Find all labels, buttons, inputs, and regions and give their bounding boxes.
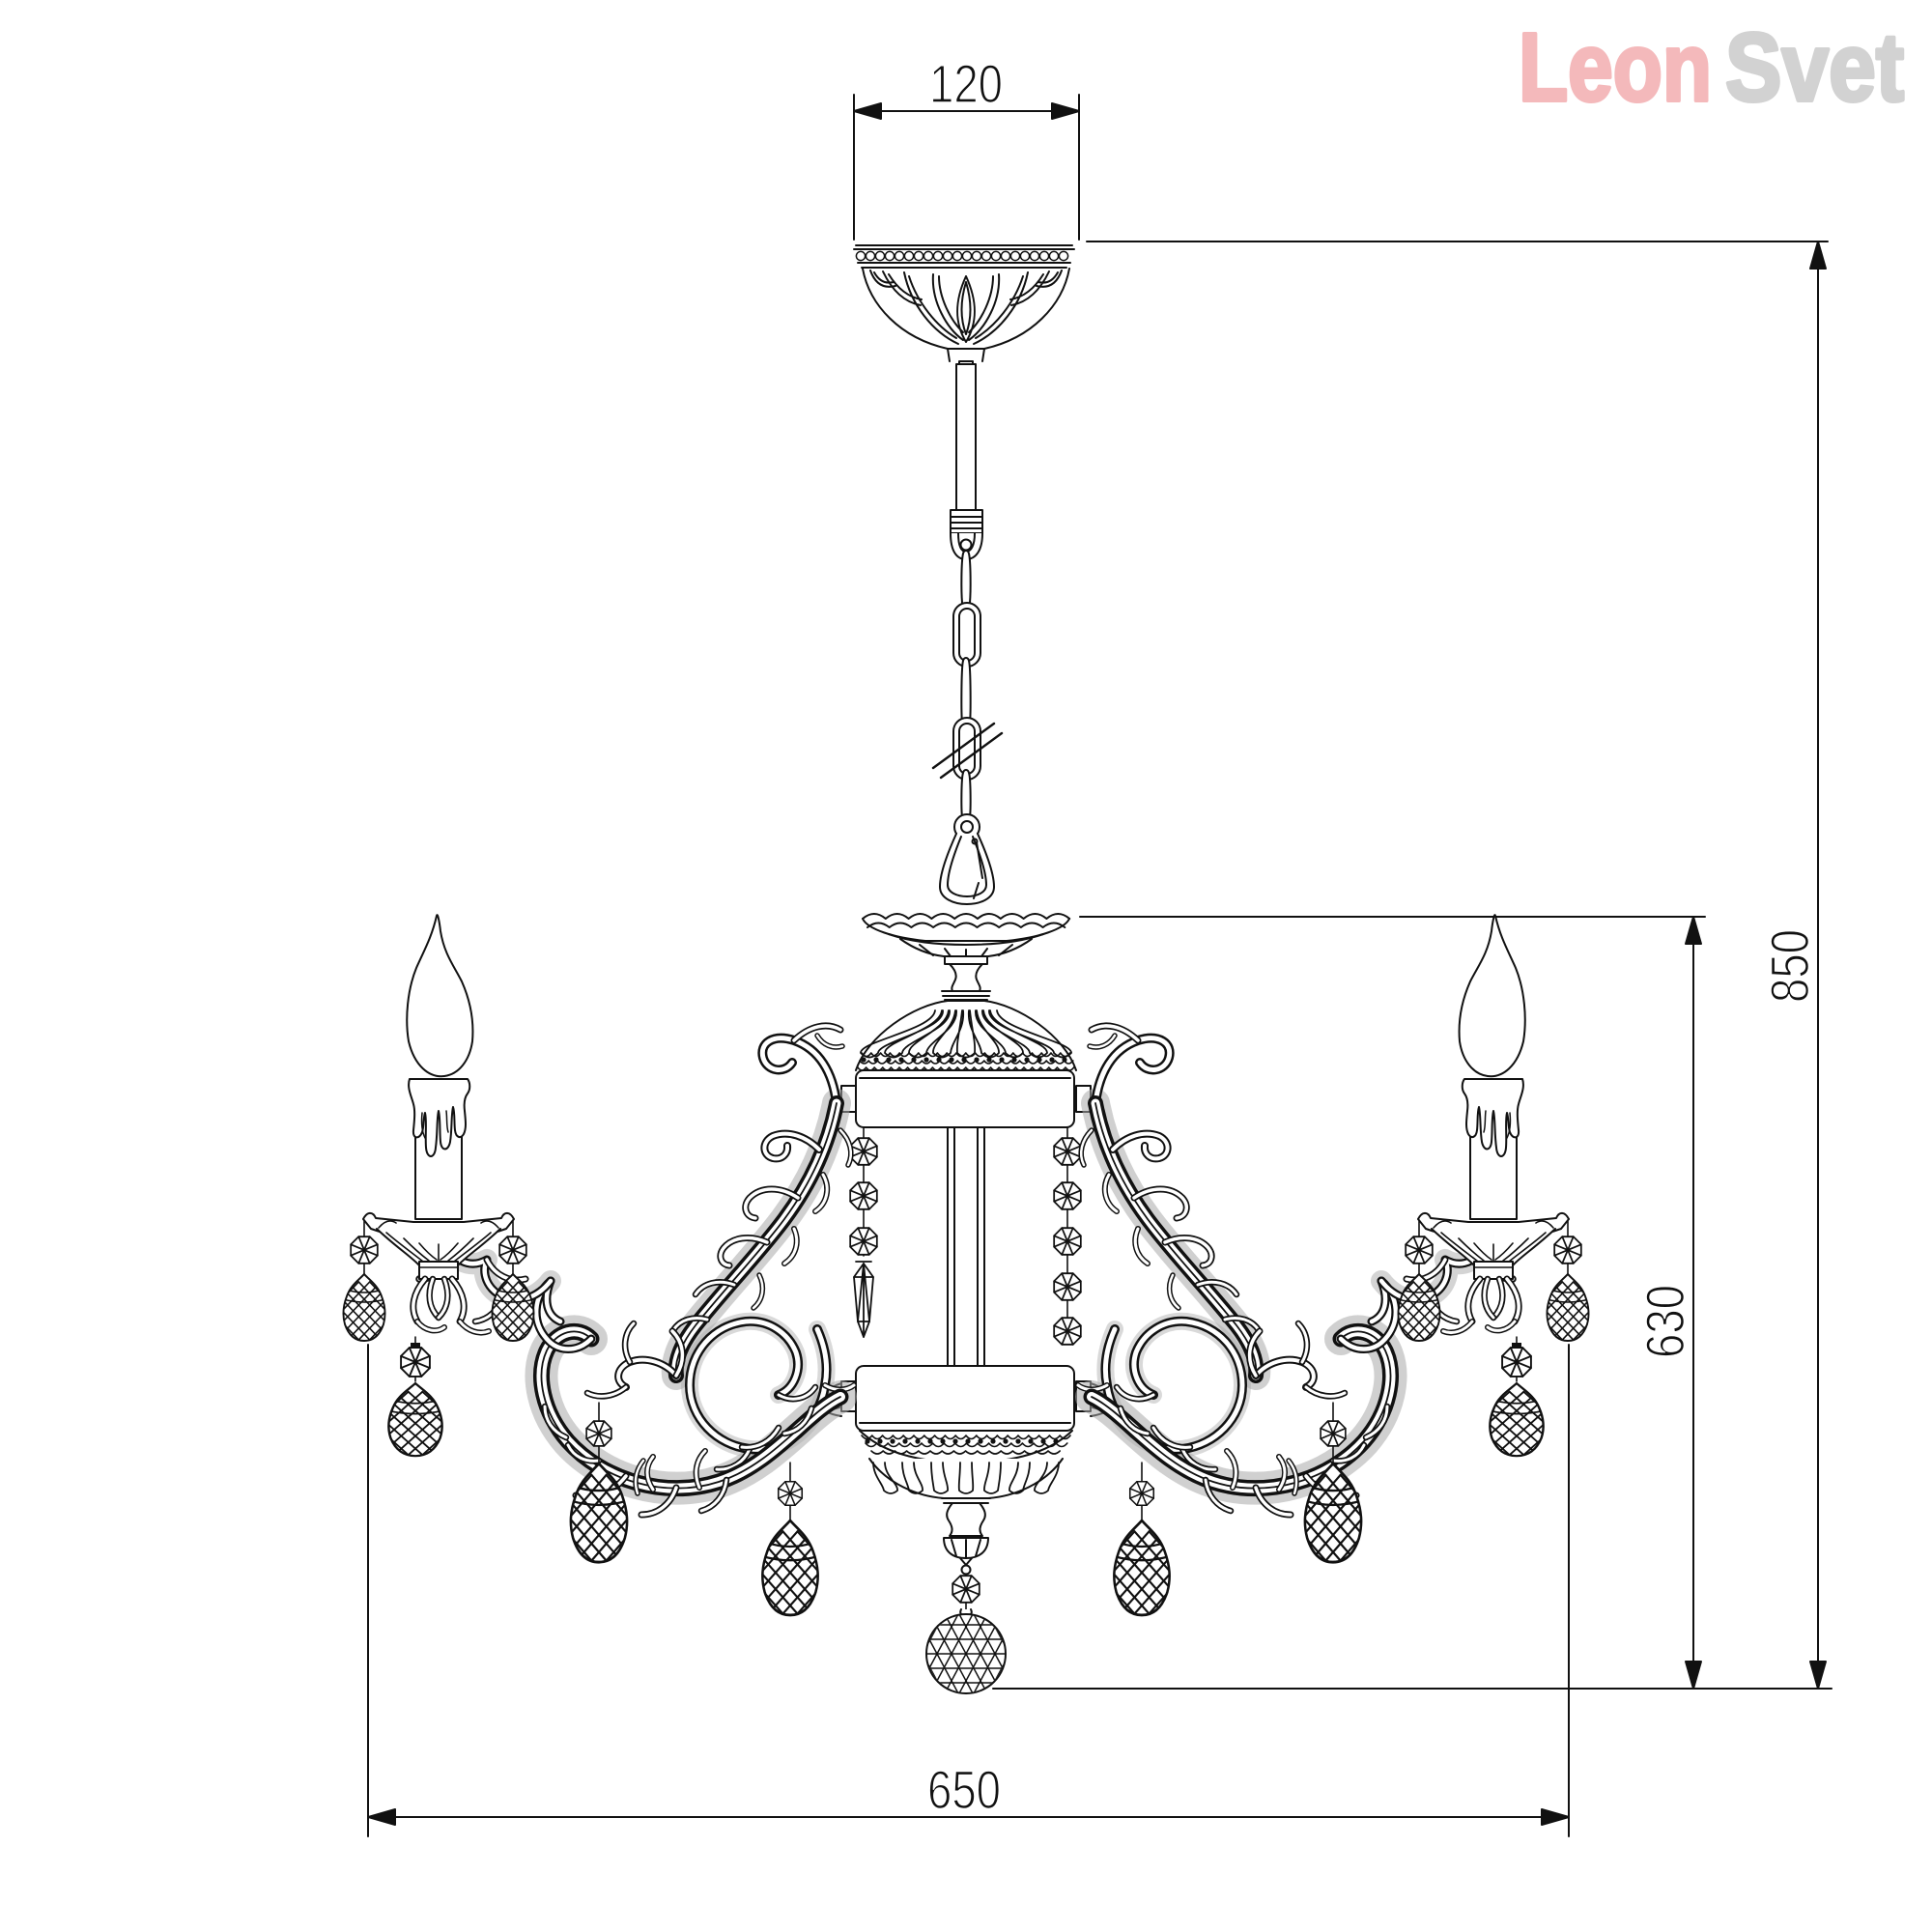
svg-text:650: 650 [927,1759,1001,1820]
svg-text:850: 850 [1759,929,1820,1003]
svg-text:Svet: Svet [1725,14,1904,122]
svg-text:630: 630 [1634,1285,1695,1358]
svg-text:120: 120 [929,53,1003,114]
svg-text:Leon: Leon [1519,14,1712,122]
